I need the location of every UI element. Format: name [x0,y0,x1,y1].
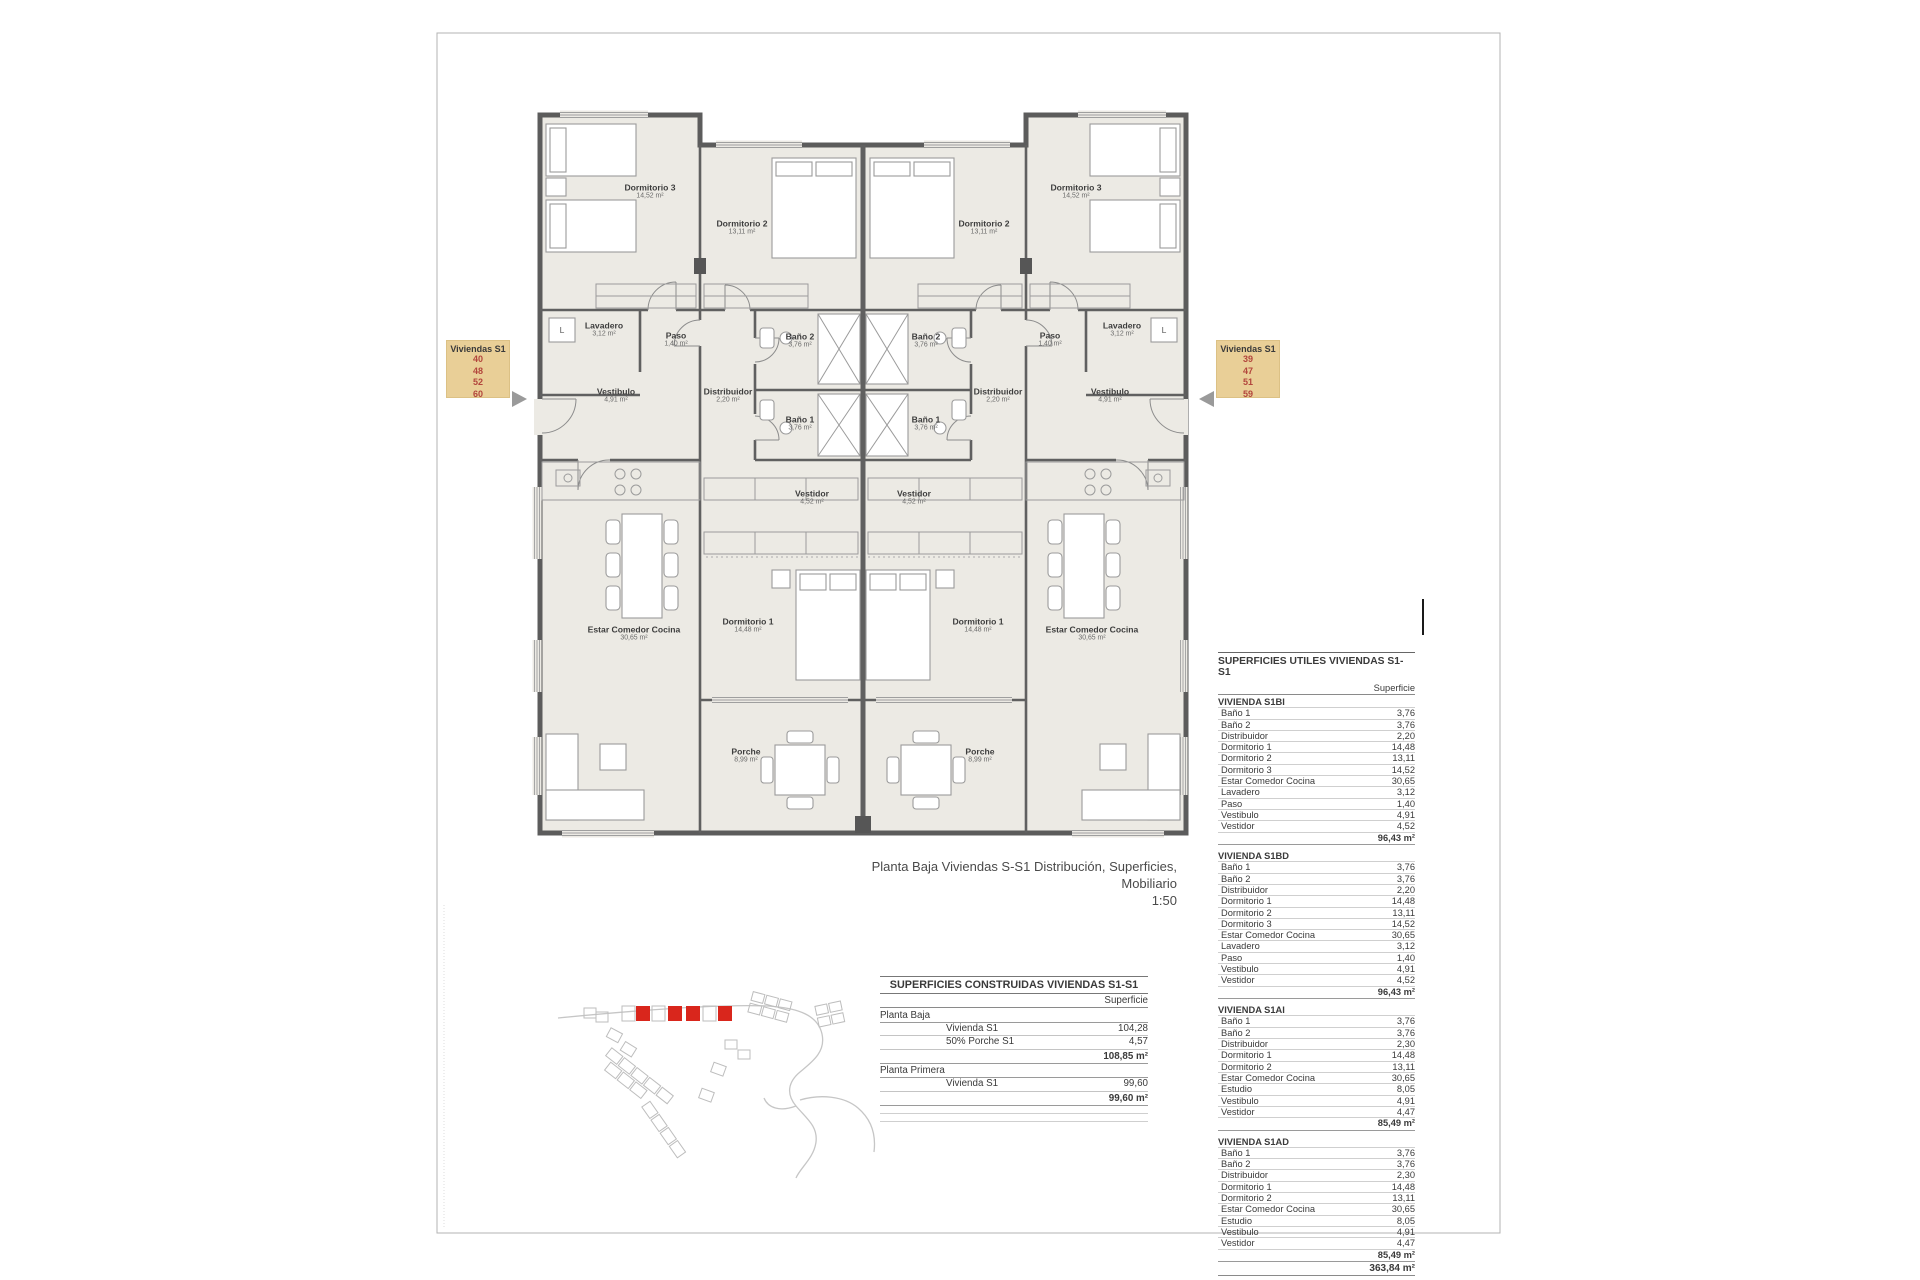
room-name: Dormitorio 2 [958,219,1009,229]
table-row: Vestidor4,52 [1218,975,1415,986]
room-label-bano1-right: Baño 13,76 m² [912,415,941,434]
room-name: Distribuidor [974,387,1023,397]
room-area: 3,76 m² [786,425,815,433]
table-column-header: Superficie [1218,683,1415,695]
room-name: Estar Comedor Cocina [1046,625,1139,635]
room-name: Porche [965,747,994,757]
table-row: Estudio8,05 [1218,1216,1415,1227]
room-label-vestidor-left: Vestidor4,52 m² [795,489,829,508]
row-label: Baño 1 [1218,1148,1250,1158]
table-row: Estudio8,05 [1218,1084,1415,1095]
row-value: 99,60 [1123,1078,1148,1091]
table-title: SUPERFICIES CONSTRUIDAS VIVIENDAS S1-S1 [880,976,1148,994]
row-label: Vestibulo [1218,1096,1259,1106]
table-rule [880,1106,1148,1114]
row-label: Baño 2 [1218,1028,1250,1038]
superficies-construidas-table: SUPERFICIES CONSTRUIDAS VIVIENDAS S1-S1 … [880,976,1148,1122]
table-row: Baño 23,76 [1218,1028,1415,1039]
table-row: Vestidor4,52 [1218,821,1415,832]
entry-arrow-left-icon [512,391,527,407]
row-value: 30,65 [1392,1204,1415,1214]
row-value: 30,65 [1392,1073,1415,1083]
room-label-estar-left: Estar Comedor Cocina30,65 m² [588,625,681,644]
room-area: 2,20 m² [974,397,1023,405]
row-label: Vestibulo [1218,964,1259,974]
highlighted-building [686,1006,700,1021]
table-row: Dormitorio 213,11 [1218,908,1415,919]
row-label: 50% Porche S1 [880,1036,1014,1049]
room-area: 1,40 m² [1038,341,1061,349]
room-label-dormitorio1-right: Dormitorio 114,48 m² [952,617,1003,636]
table-row: Dormitorio 213,11 [1218,1193,1415,1204]
room-label-vestidor-right: Vestidor4,52 m² [897,489,931,508]
row-value: 4,91 [1397,810,1415,820]
row-label: Vestidor [1218,1238,1255,1248]
unit-number: 52 [447,377,509,389]
room-name: Dormitorio 1 [952,617,1003,627]
table-row: Estar Comedor Cocina30,65 [1218,1204,1415,1215]
row-value: 3,76 [1397,708,1415,718]
unit-number: 51 [1217,377,1279,389]
room-label-vestibulo-left: Vestibulo4,91 m² [597,387,635,406]
caption-title: Planta Baja Viviendas S-S1 Distribución,… [840,858,1177,892]
room-name: Lavadero [1103,321,1141,331]
room-label-lavadero-right: Lavadero3,12 m² [1103,321,1141,340]
highlighted-building [718,1006,732,1021]
entry-arrow-right-icon [1199,391,1214,407]
table-row: Baño 13,76 [1218,1016,1415,1027]
row-value: 4,47 [1397,1107,1415,1117]
table-row: 96,43 m² [1218,987,1415,1000]
room-label-porche-right: Porche8,99 m² [965,747,994,766]
room-name: Dormitorio 1 [722,617,773,627]
table-row: VIVIENDA S1BD [1218,851,1415,862]
viviendas-label-left: Viviendas S1 40 48 52 60 [446,340,510,398]
row-value: 4,91 [1397,964,1415,974]
row-label: Vestibulo [1218,1227,1259,1237]
row-value: 3,12 [1397,787,1415,797]
table-row: Estar Comedor Cocina30,65 [1218,930,1415,941]
table-row: Estar Comedor Cocina30,65 [1218,776,1415,787]
room-area: 8,99 m² [965,757,994,765]
table-row: Vestidor4,47 [1218,1107,1415,1118]
unit-number: 60 [447,389,509,401]
row-label: Vestidor [1218,821,1255,831]
table-body: VIVIENDA S1BIBaño 13,76Baño 23,76Distrib… [1218,697,1415,1262]
row-label: Paso [1218,953,1242,963]
row-label: Estar Comedor Cocina [1218,930,1315,940]
row-label: Baño 2 [1218,720,1250,730]
row-value: 13,11 [1392,753,1415,763]
room-area: 14,48 m² [722,627,773,635]
viviendas-label-right: Viviendas S1 39 47 51 59 [1216,340,1280,398]
row-value: 13,11 [1392,1062,1415,1072]
row-label: Dormitorio 2 [1218,1193,1272,1203]
room-name: Dormitorio 3 [624,183,675,193]
table-row: VIVIENDA S1AD [1218,1137,1415,1148]
row-label: Dormitorio 3 [1218,765,1272,775]
room-name: Vestibulo [597,387,635,397]
room-name: Dormitorio 2 [716,219,767,229]
row-label: Distribuidor [1218,1170,1268,1180]
row-label: Lavadero [1218,787,1260,797]
table-row: Vestibulo4,91 [1218,1227,1415,1238]
room-name: Porche [731,747,760,757]
row-label: Estar Comedor Cocina [1218,776,1315,786]
room-name: Paso [1038,331,1061,341]
row-label: Estudio [1218,1216,1252,1226]
row-value: 30,65 [1392,776,1415,786]
row-value: 104,28 [1118,1023,1148,1036]
table-row: VIVIENDA S1BI [1218,697,1415,708]
room-label-bano2-right: Baño 23,76 m² [912,332,941,351]
table-title: SUPERFICIES UTILES VIVIENDAS S1-S1 [1218,652,1415,683]
row-value: 30,65 [1392,930,1415,940]
row-label: Distribuidor [1218,1039,1268,1049]
room-area: 1,40 m² [664,341,687,349]
row-label: Baño 1 [1218,708,1250,718]
row-value: 13,11 [1392,1193,1415,1203]
room-name: Baño 2 [912,332,941,342]
row-value: 14,48 [1392,896,1415,906]
row-value: 8,05 [1397,1084,1415,1094]
table-row: Dormitorio 114,48 [1218,896,1415,907]
room-label-vestibulo-right: Vestibulo4,91 m² [1091,387,1129,406]
row-label: Baño 2 [1218,874,1250,884]
room-area: 3,76 m² [786,342,815,350]
highlighted-building [668,1006,682,1021]
row-value: 2,20 [1397,731,1415,741]
unit-number: 48 [447,366,509,378]
room-label-bano1-left: Baño 13,76 m² [786,415,815,434]
row-label: Vestibulo [1218,810,1259,820]
row-label: Vestidor [1218,1107,1255,1117]
row-value: 8,05 [1397,1216,1415,1226]
row-label: Baño 1 [1218,862,1250,872]
floor-plan [533,111,1189,838]
table-row: Paso1,40 [1218,953,1415,964]
row-value: 1,40 [1397,953,1415,963]
row-label: Dormitorio 2 [1218,753,1272,763]
room-area: 13,11 m² [716,229,767,237]
table-rule [880,1114,1148,1122]
room-area: 30,65 m² [588,635,681,643]
row-value: 3,76 [1397,1148,1415,1158]
room-label-bano2-left: Baño 23,76 m² [786,332,815,351]
room-label-lavadero-left: Lavadero3,12 m² [585,321,623,340]
row-label: Distribuidor [1218,731,1268,741]
row-value: 4,52 [1397,821,1415,831]
room-name: Paso [664,331,687,341]
room-label-paso-left: Paso1,40 m² [664,331,687,350]
room-area: 8,99 m² [731,757,760,765]
row-label: Estar Comedor Cocina [1218,1204,1315,1214]
table-row: Baño 23,76 [1218,1159,1415,1170]
row-label: Vivienda S1 [880,1078,998,1091]
row-value: 3,76 [1397,1028,1415,1038]
row-value: 14,52 [1392,765,1415,775]
unit-number: 40 [447,354,509,366]
row-value: 14,48 [1392,1050,1415,1060]
table-row: Baño 13,76 [1218,1148,1415,1159]
room-area: 14,52 m² [624,193,675,201]
room-area: 3,12 m² [585,331,623,339]
room-area: 3,76 m² [912,425,941,433]
room-name: Baño 1 [912,415,941,425]
table-row: Distribuidor2,20 [1218,885,1415,896]
row-label: Lavadero [1218,941,1260,951]
row-value: 2,30 [1397,1039,1415,1049]
table-row: Dormitorio 314,52 [1218,765,1415,776]
table-row: Baño 13,76 [1218,708,1415,719]
table-row: 99,60 m² [880,1092,1148,1106]
table-row: Distribuidor2,30 [1218,1170,1415,1181]
room-label-distribuidor-right: Distribuidor2,20 m² [974,387,1023,406]
room-label-dormitorio1-left: Dormitorio 114,48 m² [722,617,773,636]
row-value: 3,76 [1397,874,1415,884]
table-row: Vestibulo4,91 [1218,810,1415,821]
unit-number: 39 [1217,354,1279,366]
row-value: 2,20 [1397,885,1415,895]
table-row: Lavadero3,12 [1218,787,1415,798]
table-row: Dormitorio 213,11 [1218,1062,1415,1073]
table-row: Paso1,40 [1218,799,1415,810]
row-value: 1,40 [1397,799,1415,809]
room-area: 4,91 m² [597,397,635,405]
highlighted-building [636,1006,650,1021]
table-row: Dormitorio 314,52 [1218,919,1415,930]
room-area: 13,11 m² [958,229,1009,237]
row-label: Vestidor [1218,975,1255,985]
table-row: Vivienda S199,60 [880,1078,1148,1092]
row-value: 3,76 [1397,720,1415,730]
table-row: Vestidor4,47 [1218,1238,1415,1249]
room-area: 4,52 m² [897,499,931,507]
room-label-dormitorio3-left: Dormitorio 314,52 m² [624,183,675,202]
table-row: Baño 13,76 [1218,862,1415,873]
room-name: Lavadero [585,321,623,331]
row-label: Estar Comedor Cocina [1218,1073,1315,1083]
row-label: Distribuidor [1218,885,1268,895]
table-row: VIVIENDA S1AI [1218,1005,1415,1016]
room-area: 2,20 m² [704,397,753,405]
row-value: 3,12 [1397,941,1415,951]
room-label-estar-right: Estar Comedor Cocina30,65 m² [1046,625,1139,644]
room-area: 3,76 m² [912,342,941,350]
row-label: Estudio [1218,1084,1252,1094]
row-label: Paso [1218,799,1242,809]
table-row: Vestibulo4,91 [1218,964,1415,975]
washer-tag-right: L [1162,325,1167,335]
table-row: Baño 23,76 [1218,720,1415,731]
row-value: 4,52 [1397,975,1415,985]
row-label: Dormitorio 1 [1218,1050,1272,1060]
room-name: Estar Comedor Cocina [588,625,681,635]
room-label-dormitorio2-right: Dormitorio 213,11 m² [958,219,1009,238]
table-row: Distribuidor2,30 [1218,1039,1415,1050]
table-row: Lavadero3,12 [1218,941,1415,952]
row-label: Baño 2 [1218,1159,1250,1169]
site-map [558,992,874,1178]
row-value: 4,57 [1129,1036,1148,1049]
room-area: 30,65 m² [1046,635,1139,643]
room-area: 14,52 m² [1050,193,1101,201]
room-name: Baño 1 [786,415,815,425]
room-area: 4,52 m² [795,499,829,507]
row-value: 13,11 [1392,908,1415,918]
row-value: 14,48 [1392,1182,1415,1192]
room-area: 14,48 m² [952,627,1003,635]
row-value: 14,48 [1392,742,1415,752]
table-body: Planta BajaVivienda S1104,2850% Porche S… [880,1008,1148,1106]
table-row: Dormitorio 213,11 [1218,753,1415,764]
room-label-dormitorio3-right: Dormitorio 314,52 m² [1050,183,1101,202]
cursor-mark [1422,599,1424,635]
table-row: Distribuidor2,20 [1218,731,1415,742]
table-row: Dormitorio 114,48 [1218,1050,1415,1061]
room-name: Distribuidor [704,387,753,397]
unit-number: 59 [1217,389,1279,401]
room-label-paso-right: Paso1,40 m² [1038,331,1061,350]
caption-scale: 1:50 [840,892,1177,909]
room-name: Dormitorio 3 [1050,183,1101,193]
row-value: 4,91 [1397,1096,1415,1106]
viviendas-label-title: Viviendas S1 [447,344,509,354]
row-value: 2,30 [1397,1170,1415,1180]
row-value: 3,76 [1397,862,1415,872]
row-label: Dormitorio 2 [1218,908,1272,918]
viviendas-label-title: Viviendas S1 [1217,344,1279,354]
room-name: Vestibulo [1091,387,1129,397]
table-row: Planta Baja [880,1008,1148,1023]
table-row: Estar Comedor Cocina30,65 [1218,1073,1415,1084]
drawing-caption: Planta Baja Viviendas S-S1 Distribución,… [840,858,1177,909]
row-value: 3,76 [1397,1159,1415,1169]
washer-tag-left: L [560,325,565,335]
table-grand-total: 363,84 m² [1218,1262,1415,1276]
table-column-header: Superficie [880,994,1148,1008]
table-row: Vivienda S1104,28 [880,1023,1148,1037]
row-label: Dormitorio 3 [1218,919,1272,929]
room-name: Vestidor [795,489,829,499]
row-value: 4,91 [1397,1227,1415,1237]
row-label: Dormitorio 1 [1218,1182,1272,1192]
table-row: Planta Primera [880,1064,1148,1079]
row-value: 4,47 [1397,1238,1415,1248]
room-label-distribuidor-left: Distribuidor2,20 m² [704,387,753,406]
room-name: Baño 2 [786,332,815,342]
row-value: 14,52 [1392,919,1415,929]
unit-number: 47 [1217,366,1279,378]
room-label-porche-left: Porche8,99 m² [731,747,760,766]
table-row: 96,43 m² [1218,833,1415,846]
room-area: 4,91 m² [1091,397,1129,405]
row-label: Dormitorio 2 [1218,1062,1272,1072]
row-label: Dormitorio 1 [1218,896,1272,906]
superficies-utiles-table: SUPERFICIES UTILES VIVIENDAS S1-S1 Super… [1218,652,1415,1276]
row-label: Baño 1 [1218,1016,1250,1026]
table-row: 85,49 m² [1218,1250,1415,1263]
table-row: Baño 23,76 [1218,874,1415,885]
row-label: Vivienda S1 [880,1023,998,1036]
table-row: Dormitorio 114,48 [1218,1182,1415,1193]
row-label: Dormitorio 1 [1218,742,1272,752]
table-row: 50% Porche S14,57 [880,1036,1148,1050]
table-row: 108,85 m² [880,1050,1148,1064]
room-name: Vestidor [897,489,931,499]
table-row: Dormitorio 114,48 [1218,742,1415,753]
room-label-dormitorio2-left: Dormitorio 213,11 m² [716,219,767,238]
table-row: Vestibulo4,91 [1218,1096,1415,1107]
table-row: 85,49 m² [1218,1118,1415,1131]
room-area: 3,12 m² [1103,331,1141,339]
row-value: 3,76 [1397,1016,1415,1026]
